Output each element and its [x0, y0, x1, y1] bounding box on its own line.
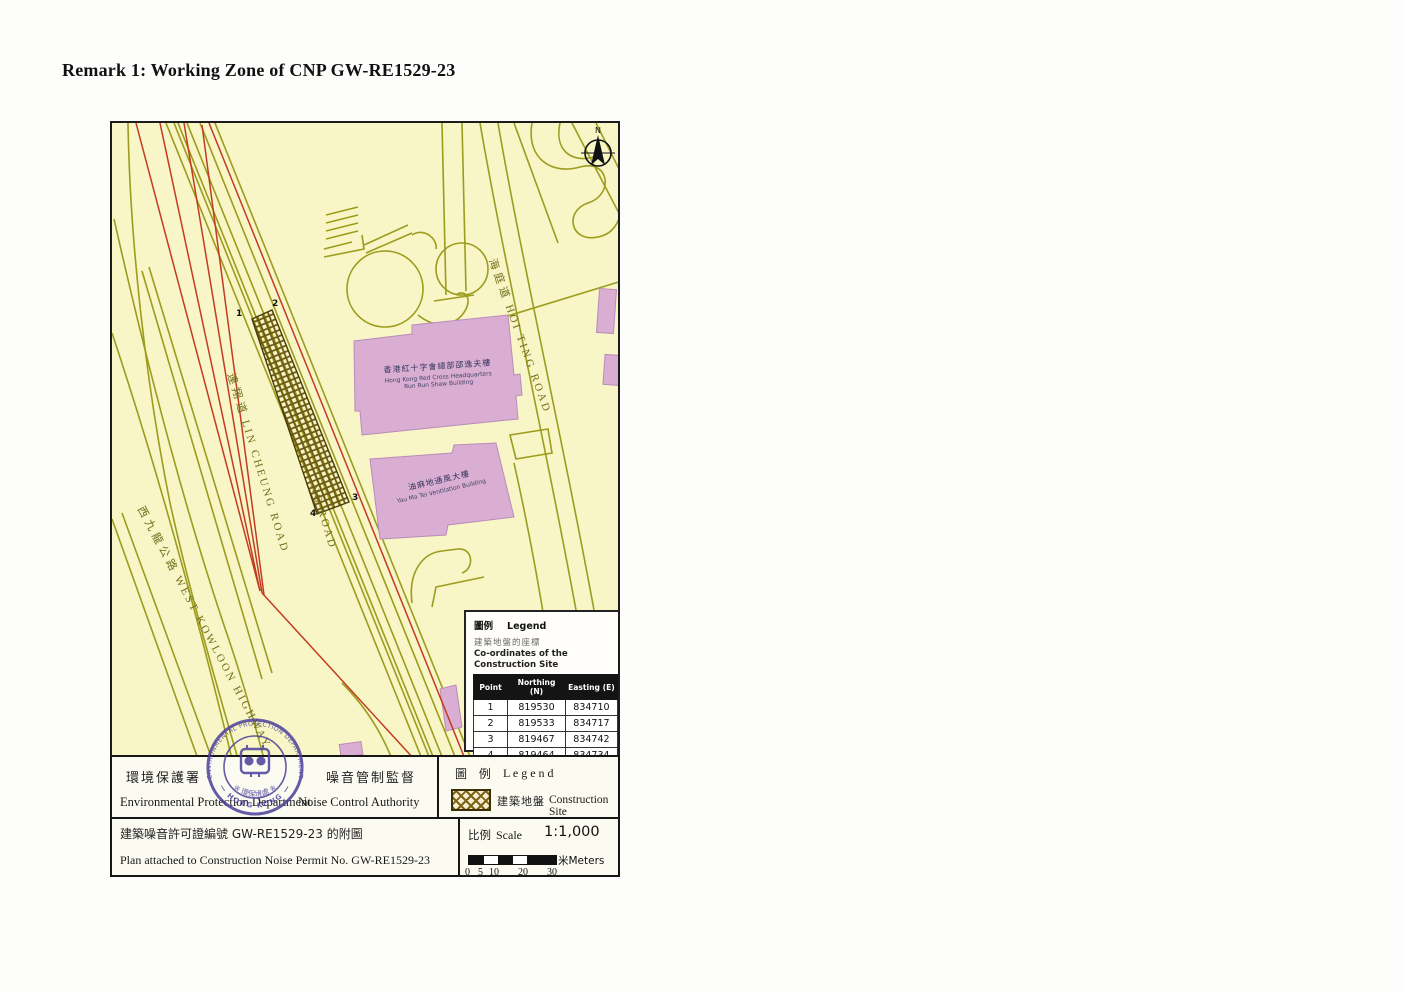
dept-name-en: Environmental Protection Department	[120, 795, 311, 810]
cell-point: 3	[474, 732, 508, 748]
permit-cell: 建築噪音許可證編號 GW-RE1529-23 的附圖 Plan attached…	[110, 817, 460, 877]
legend-box-subtitle-zh: 建築地盤的座標	[474, 636, 541, 648]
scale-bar-segment	[513, 856, 528, 864]
authority-cell: 環境保護署 噪音管制監督 Environmental Protection De…	[110, 755, 439, 819]
permit-title-zh: 建築噪音許可證編號 GW-RE1529-23 的附圖	[120, 825, 363, 842]
site-point-2: 2	[272, 299, 278, 309]
table-row: 3 819467 834742	[474, 732, 618, 748]
scale-bar-segment	[484, 856, 499, 864]
legend-box-title-zh: 圖例	[474, 621, 493, 632]
cell-northing: 819533	[508, 716, 566, 732]
scale-tick: 20	[518, 867, 528, 878]
scale-cell: 比例 Scale 1:1,000 0 5 10 20 30 米Meters	[458, 817, 620, 877]
site-point-1: 1	[236, 309, 242, 319]
authority-name-zh: 噪音管制監督	[326, 767, 416, 786]
scale-label-zh: 比例	[468, 827, 491, 843]
legend-box-title-en: Legend	[507, 621, 546, 632]
footer-legend-en: L e g e n d	[503, 766, 554, 781]
scale-tick: 5	[478, 867, 483, 878]
legend-box-title: 圖例Legend	[474, 618, 546, 632]
cell-point: 1	[474, 700, 508, 716]
scale-value: 1:1,000	[544, 824, 600, 840]
table-row: 1 819530 834710	[474, 700, 618, 716]
construction-site-swatch	[451, 789, 491, 811]
site-point-3: 3	[352, 493, 358, 503]
scale-bar-segment	[498, 856, 513, 864]
cell-easting: 834742	[565, 732, 617, 748]
col-header-easting: Easting (E)	[565, 675, 617, 700]
table-row: 2 819533 834717	[474, 716, 618, 732]
north-label: N	[595, 126, 601, 135]
scale-tick: 30	[547, 867, 557, 878]
cell-easting: 834710	[565, 700, 617, 716]
cell-northing: 819467	[508, 732, 566, 748]
scale-bar-segment	[469, 856, 484, 864]
meters-label: 米Meters	[558, 853, 604, 868]
coordinates-table: Point Northing (N) Easting (E) 1 819530 …	[473, 674, 618, 757]
scale-label-en: Scale	[496, 828, 522, 843]
dept-name-zh: 環境保護署	[126, 767, 201, 786]
document-page: Remark 1: Working Zone of CNP GW-RE1529-…	[0, 0, 1403, 992]
footer-site-zh: 建築地盤	[497, 793, 545, 809]
north-arrow-icon: N	[581, 126, 615, 166]
cell-northing: 819530	[508, 700, 566, 716]
col-header-point: Point	[474, 675, 508, 700]
scale-bar-segment	[527, 856, 556, 864]
col-header-northing: Northing (N)	[508, 675, 566, 700]
permit-title-en: Plan attached to Construction Noise Perm…	[120, 853, 430, 868]
cell-point: 2	[474, 716, 508, 732]
plan-figure: N 連翔道LIN CHEUNG ROAD NG ROAD 海庭道HOI TING…	[110, 121, 620, 877]
footer-legend-zh: 圖 例	[455, 765, 495, 782]
scale-bar	[468, 855, 557, 865]
coordinates-legend-box: 圖例Legend 建築地盤的座標 Co-ordinates of the Con…	[464, 610, 620, 752]
scale-tick: 0	[465, 867, 470, 878]
legend-cell: 圖 例 L e g e n d 建築地盤 Construction Site	[437, 755, 620, 819]
footer-site-en: Construction Site	[549, 794, 618, 818]
site-map: N 連翔道LIN CHEUNG ROAD NG ROAD 海庭道HOI TING…	[110, 121, 620, 757]
legend-box-subtitle-en: Co-ordinates of the Construction Site	[474, 649, 620, 670]
page-title: Remark 1: Working Zone of CNP GW-RE1529-…	[62, 60, 455, 81]
coordinates-table-header-row: Point Northing (N) Easting (E)	[474, 675, 618, 700]
site-point-4: 4	[310, 509, 316, 519]
scale-tick: 10	[489, 867, 499, 878]
authority-name-en: Noise Control Authority	[298, 795, 420, 810]
cell-easting: 834717	[565, 716, 617, 732]
